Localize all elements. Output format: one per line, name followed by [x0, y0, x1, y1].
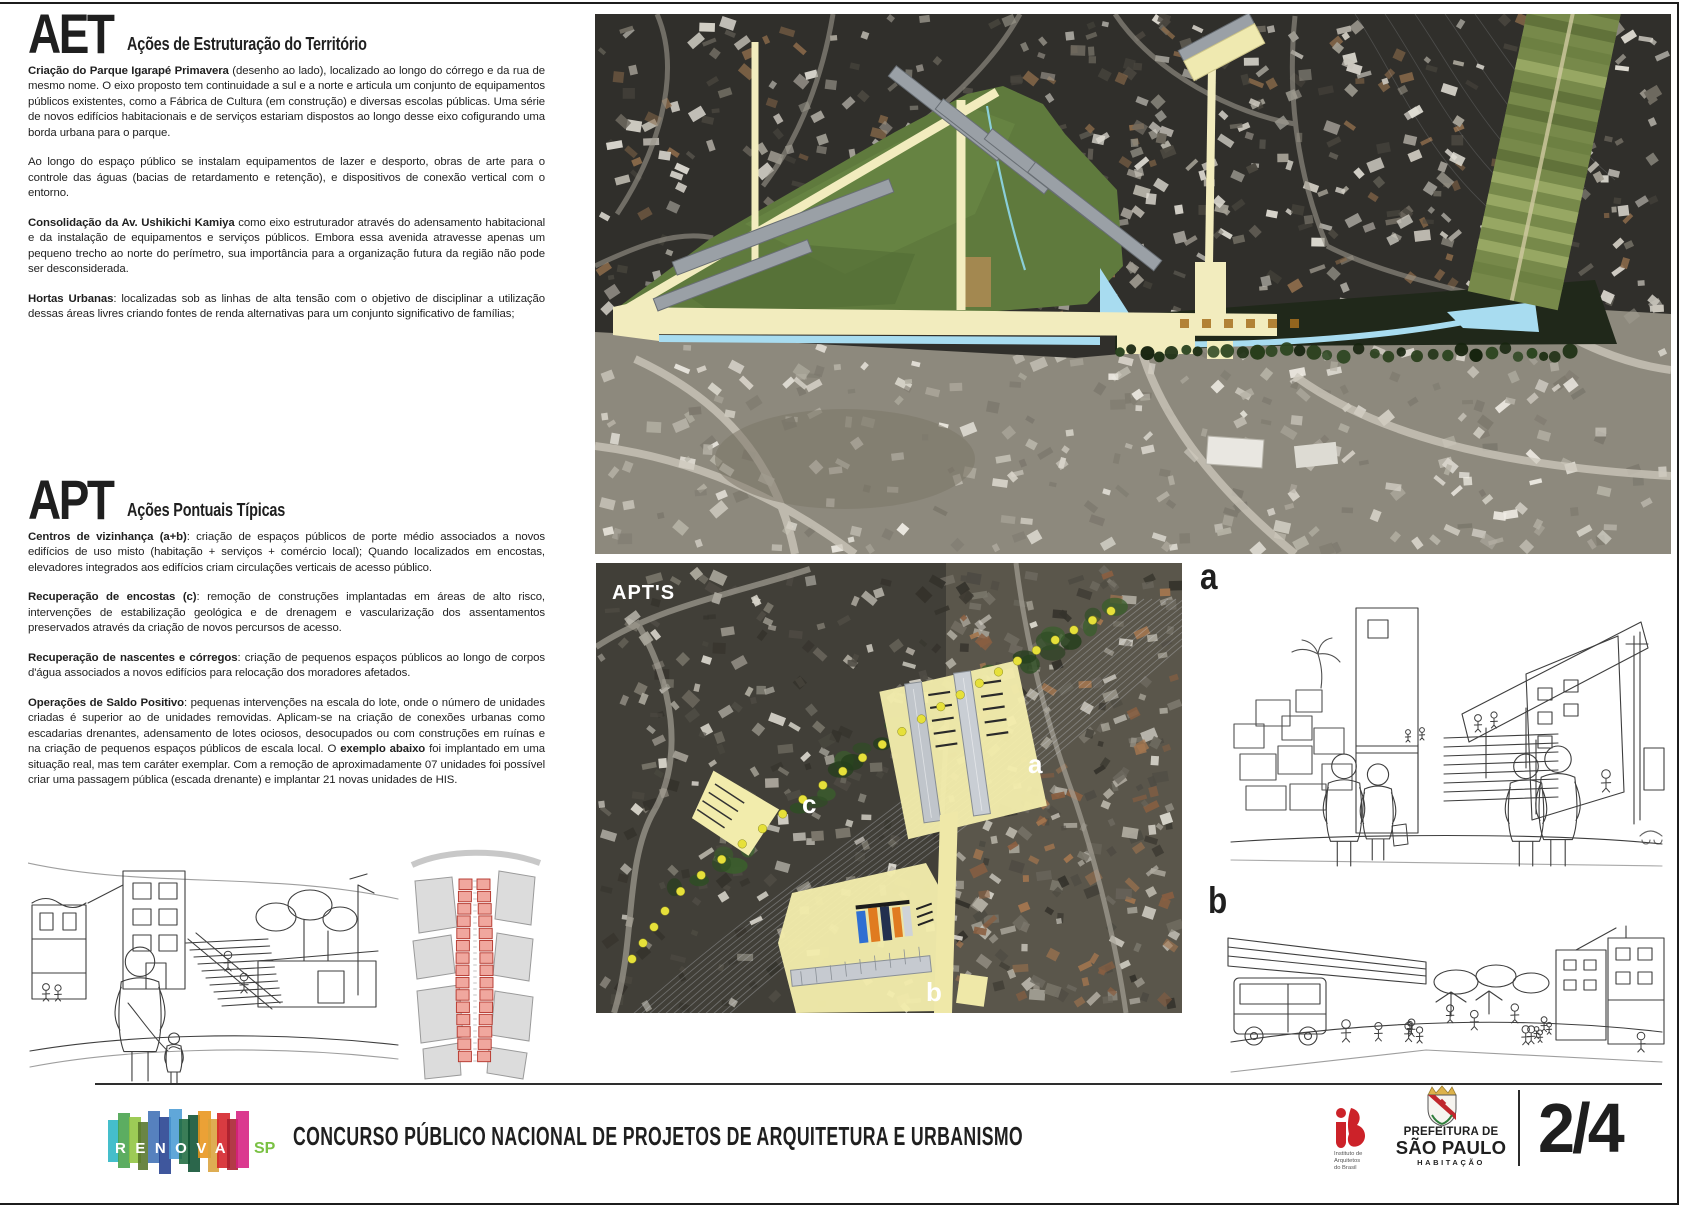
page-number: 2/4 — [1538, 1088, 1622, 1168]
frame-top — [0, 2, 1679, 4]
apt-paragraph-4: Operações de Saldo Positivo: pequenas in… — [28, 696, 545, 789]
iab-caption-line1: Instituto de — [1334, 1151, 1362, 1158]
yellow-lot — [956, 973, 988, 1007]
section-aet: AET Ações de Estruturação do Território … — [28, 12, 545, 337]
aet-paragraph-3: Consolidação da Av. Ushikichi Kamiya com… — [28, 216, 545, 278]
iab-caption-line2: Arquitetos — [1334, 1158, 1362, 1165]
aet-paragraph-1: Criação do Parque Igarapé Primavera (des… — [28, 64, 545, 142]
aet-p2-text: Ao longo do espaço público se instalam e… — [28, 156, 545, 199]
aerial-map-apts: APT'S a c b — [596, 563, 1182, 1013]
plan-buildings — [413, 871, 535, 1079]
renova-sp-logo: RENOVA SP — [108, 1106, 283, 1176]
marker-a: a — [1028, 749, 1043, 779]
marker-c: c — [802, 789, 816, 819]
iab-logo — [1334, 1106, 1374, 1150]
plaza-north — [1195, 262, 1226, 316]
renova-logo-sp: SP — [254, 1140, 276, 1157]
aet-code: AET — [28, 12, 112, 56]
sketch-a-label: a — [1200, 556, 1217, 598]
aet-header: AET Ações de Estruturação do Território — [28, 12, 545, 56]
apt-header: APT Ações Pontuais Típicas — [28, 478, 545, 522]
apt-p1-lead: Centros de vizinhança (a+b) — [28, 531, 187, 543]
iab-caption: Instituto de Arquitetos do Brasil — [1334, 1151, 1362, 1172]
apt-p2-lead: Recuperação de encostas (c) — [28, 591, 196, 603]
sketch-street-scene — [28, 843, 400, 1083]
marker-b: b — [926, 977, 942, 1007]
sketch-a-neighborhood-center — [1226, 596, 1666, 880]
aet-paragraph-4: Hortas Urbanas: localizadas sob as linha… — [28, 292, 545, 323]
competition-board: AET Ações de Estruturação do Território … — [0, 0, 1688, 1212]
apt-paragraph-3: Recuperação de nascentes e córregos: cri… — [28, 651, 545, 682]
aerial-map-territory — [595, 14, 1671, 554]
apt-paragraph-2: Recuperação de encostas (c): remoção de … — [28, 590, 545, 637]
plan-stair-ticks — [473, 881, 477, 1061]
renova-logo-letters: RENOVA — [115, 1140, 235, 1157]
sketch-b-street-market — [1226, 920, 1666, 1080]
apt-p4-bold: exemplo abaixo — [340, 743, 425, 755]
aet-paragraph-2: Ao longo do espaço público se instalam e… — [28, 155, 545, 202]
sao-paulo-crest — [1424, 1085, 1460, 1127]
aet-p1-lead: Criação do Parque Igarapé Primavera — [28, 65, 229, 77]
aet-p3-lead: Consolidação da Av. Ushikichi Kamiya — [28, 217, 235, 229]
map-mid-title: APT'S — [612, 582, 675, 604]
prefeitura-line2: SÃO PAULO — [1392, 1138, 1510, 1157]
sketch-plan-diagram — [407, 841, 545, 1083]
frame-bottom — [0, 1203, 1679, 1205]
prefeitura-line3: HABITAÇÃO — [1392, 1159, 1510, 1167]
aet-title: Ações de Estruturação do Território — [127, 34, 367, 55]
bare-hill — [715, 409, 975, 509]
iab-caption-line3: do Brasil — [1334, 1165, 1362, 1172]
shed-building — [1294, 442, 1338, 468]
section-apt: APT Ações Pontuais Típicas Centros de vi… — [28, 478, 545, 803]
apt-p4-lead: Operações de Saldo Positivo — [28, 697, 184, 709]
aet-p4-lead: Hortas Urbanas — [28, 293, 113, 305]
sports-field — [964, 257, 991, 307]
sketch-b-label: b — [1208, 880, 1226, 922]
plan-new-units — [456, 879, 493, 1062]
prefeitura-caption: PREFEITURA DE SÃO PAULO HABITAÇÃO — [1392, 1126, 1510, 1167]
apt-paragraph-1: Centros de vizinhança (a+b): criação de … — [28, 530, 545, 577]
apt-title: Ações Pontuais Típicas — [127, 500, 285, 521]
footer-divider — [1518, 1090, 1520, 1166]
apt-code: APT — [28, 478, 112, 522]
frame-right — [1677, 2, 1679, 1205]
apt-p3-lead: Recuperação de nascentes e córregos — [28, 652, 237, 664]
competition-title: CONCURSO PÚBLICO NACIONAL DE PROJETOS DE… — [293, 1121, 1023, 1152]
warehouse-building — [1206, 436, 1264, 468]
